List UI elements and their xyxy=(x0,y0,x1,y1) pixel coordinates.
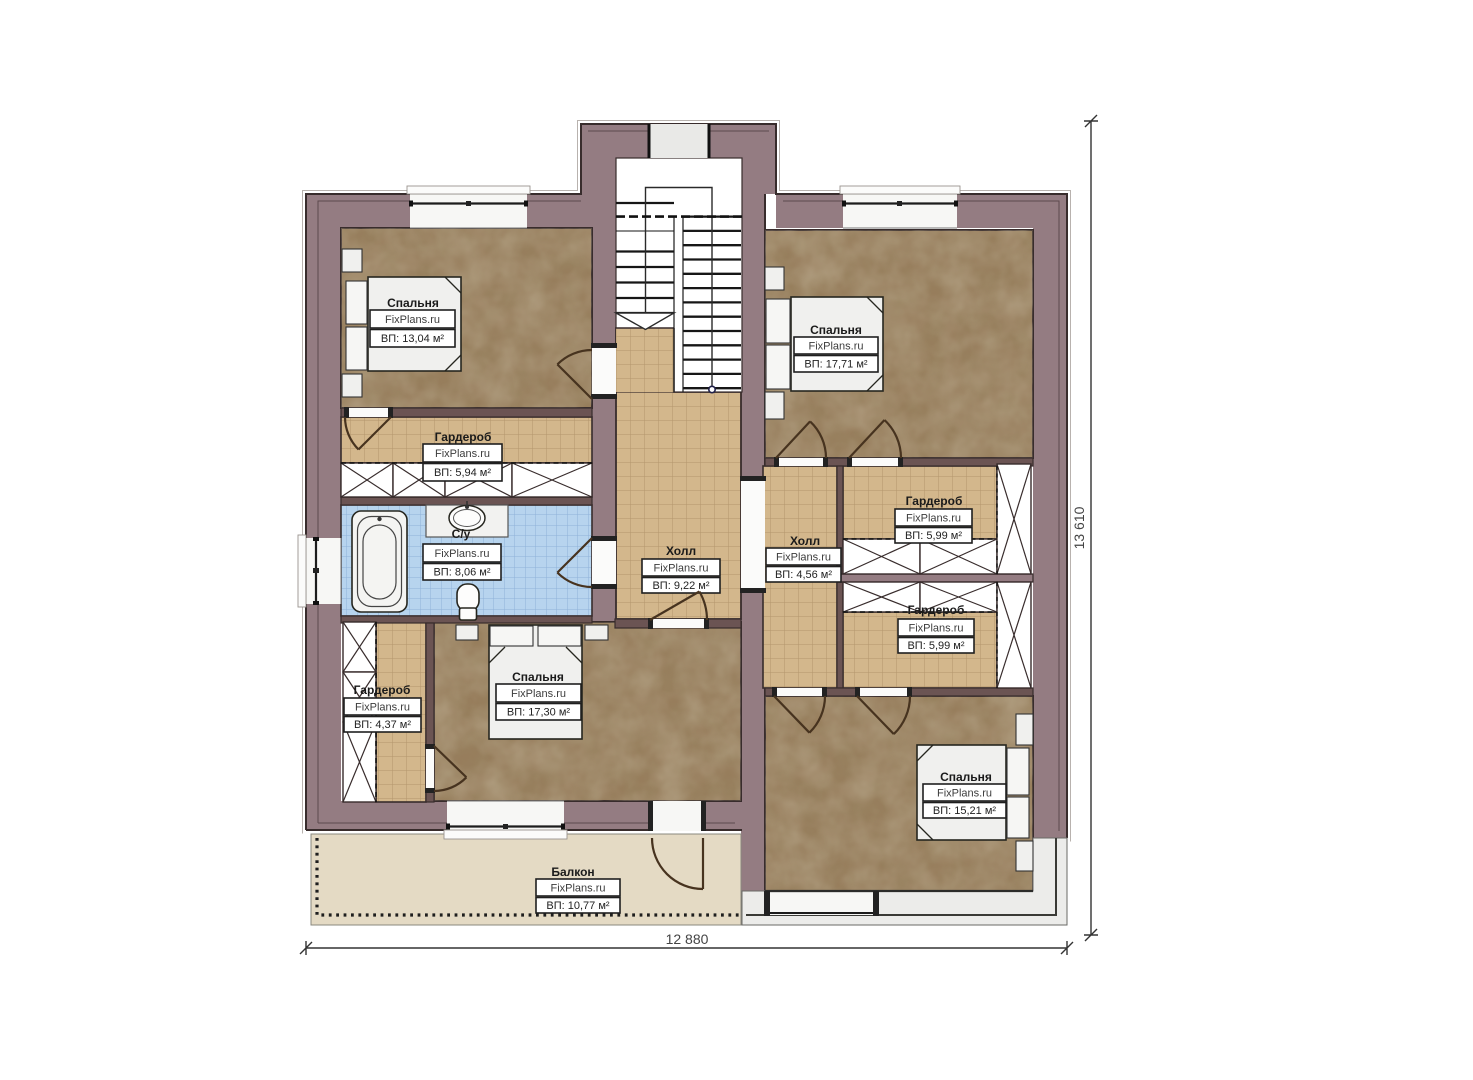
svg-text:Спальня: Спальня xyxy=(810,323,862,337)
svg-text:Спальня: Спальня xyxy=(940,770,992,784)
svg-text:ВП: 17,71 м²: ВП: 17,71 м² xyxy=(804,359,868,371)
svg-text:FixPlans.ru: FixPlans.ru xyxy=(908,623,963,635)
svg-text:ВП: 4,56 м²: ВП: 4,56 м² xyxy=(775,569,832,581)
svg-text:ВП: 4,37 м²: ВП: 4,37 м² xyxy=(354,719,411,731)
svg-text:FixPlans.ru: FixPlans.ru xyxy=(906,513,961,525)
svg-text:ВП: 8,06 м²: ВП: 8,06 м² xyxy=(433,567,490,579)
svg-text:ВП: 5,99 м²: ВП: 5,99 м² xyxy=(905,530,962,542)
svg-text:ВП: 17,30 м²: ВП: 17,30 м² xyxy=(507,707,571,719)
svg-text:FixPlans.ru: FixPlans.ru xyxy=(550,883,605,895)
svg-text:ВП: 5,94 м²: ВП: 5,94 м² xyxy=(434,467,491,479)
svg-text:FixPlans.ru: FixPlans.ru xyxy=(355,702,410,714)
svg-text:Гардероб: Гардероб xyxy=(354,683,411,697)
svg-text:FixPlans.ru: FixPlans.ru xyxy=(937,788,992,800)
svg-text:ВП: 13,04 м²: ВП: 13,04 м² xyxy=(381,333,445,345)
svg-text:FixPlans.ru: FixPlans.ru xyxy=(435,448,490,460)
svg-text:FixPlans.ru: FixPlans.ru xyxy=(653,563,708,575)
svg-text:ВП: 15,21 м²: ВП: 15,21 м² xyxy=(933,805,997,817)
svg-text:FixPlans.ru: FixPlans.ru xyxy=(511,688,566,700)
svg-text:Холл: Холл xyxy=(666,544,696,558)
svg-text:FixPlans.ru: FixPlans.ru xyxy=(808,341,863,353)
svg-text:Спальня: Спальня xyxy=(387,296,439,310)
svg-text:Балкон: Балкон xyxy=(551,865,594,879)
svg-text:Холл: Холл xyxy=(790,534,820,548)
svg-text:Гардероб: Гардероб xyxy=(435,430,492,444)
svg-text:С/у: С/у xyxy=(452,527,471,541)
svg-text:Гардероб: Гардероб xyxy=(906,494,963,508)
svg-text:Спальня: Спальня xyxy=(512,670,564,684)
svg-text:13 610: 13 610 xyxy=(1071,506,1087,549)
svg-text:ВП: 9,22 м²: ВП: 9,22 м² xyxy=(652,580,709,592)
svg-text:FixPlans.ru: FixPlans.ru xyxy=(434,548,489,560)
svg-text:ВП: 10,77 м²: ВП: 10,77 м² xyxy=(546,900,610,912)
svg-text:Гардероб: Гардероб xyxy=(908,603,965,617)
svg-text:FixPlans.ru: FixPlans.ru xyxy=(776,552,831,564)
svg-text:12 880: 12 880 xyxy=(666,931,709,947)
svg-text:ВП: 5,99 м²: ВП: 5,99 м² xyxy=(907,640,964,652)
svg-text:FixPlans.ru: FixPlans.ru xyxy=(385,314,440,326)
